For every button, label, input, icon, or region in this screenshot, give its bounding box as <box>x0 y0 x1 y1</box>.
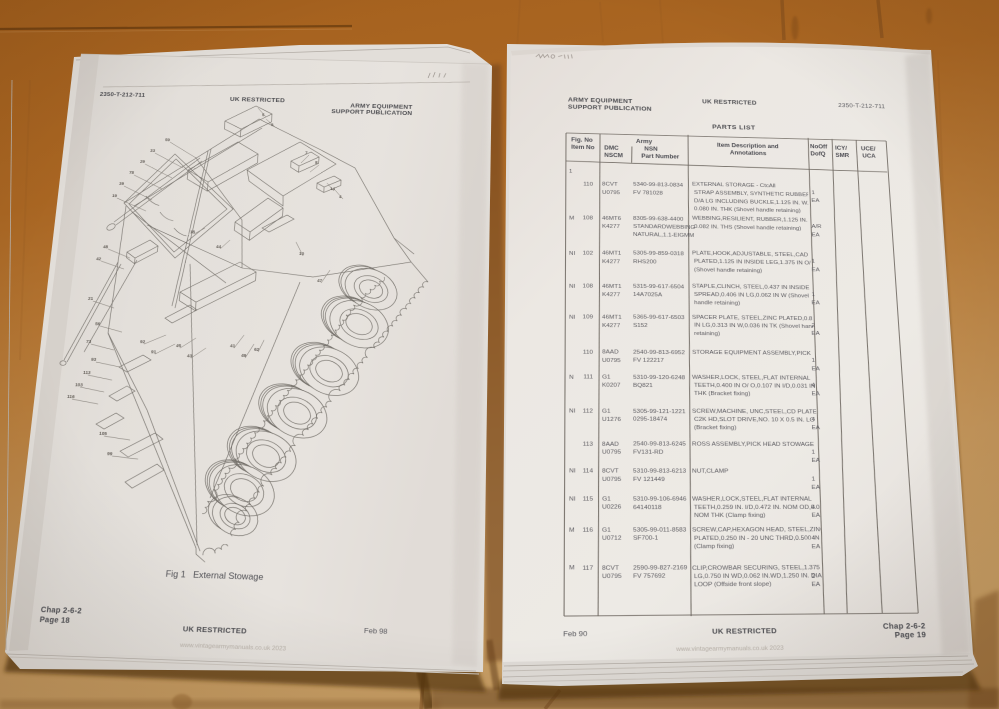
svg-text:NATURAL,1.1-EIGMM: NATURAL,1.1-EIGMM <box>633 232 695 239</box>
svg-text:108: 108 <box>583 283 593 289</box>
svg-text:Part Number: Part Number <box>641 154 680 161</box>
svg-text:47: 47 <box>317 278 323 283</box>
svg-text:2590-99-827-2169: 2590-99-827-2169 <box>633 565 687 572</box>
svg-text:8305-99-638-4400: 8305-99-638-4400 <box>633 216 683 223</box>
svg-text:103: 103 <box>75 382 84 388</box>
svg-text:1: 1 <box>811 358 815 364</box>
svg-text:5305-99-859-0318: 5305-99-859-0318 <box>633 251 684 258</box>
svg-text:handle retaining): handle retaining) <box>694 300 740 307</box>
svg-text:1: 1 <box>569 169 572 175</box>
svg-text:DMC: DMC <box>604 146 619 152</box>
svg-text:D/A LG INCLUDING BUCKLE,1.125: D/A LG INCLUDING BUCKLE,1.125 IN. W. <box>694 198 809 206</box>
svg-text:44: 44 <box>216 244 222 249</box>
svg-text:M: M <box>569 565 575 572</box>
svg-text:5310-99-813-6213: 5310-99-813-6213 <box>633 468 686 475</box>
svg-text:(Shovel handle retaining): (Shovel handle retaining) <box>694 267 762 274</box>
svg-text:2: 2 <box>811 573 815 580</box>
svg-text:M: M <box>569 527 575 534</box>
svg-text:TEETH,0.400 IN O/ O,0.107 IN I: TEETH,0.400 IN O/ O,0.107 IN I/D,0.031 I… <box>694 383 816 390</box>
svg-text:CLIP,CROWBAR SECURING, STEEL,1: CLIP,CROWBAR SECURING, STEEL,1.375 IN. <box>692 565 831 572</box>
svg-text:73: 73 <box>86 339 93 345</box>
svg-text:G1: G1 <box>602 408 611 414</box>
svg-text:0.082 IN. THS (Shovel handle r: 0.082 IN. THS (Shovel handle retaining) <box>694 224 802 232</box>
svg-text:93: 93 <box>91 357 98 363</box>
svg-text:Fig. No: Fig. No <box>571 138 593 144</box>
svg-text:NSCM: NSCM <box>604 153 623 159</box>
svg-text:EA: EA <box>811 300 820 306</box>
svg-text:SCREW,MACHINE, UNC,STEEL,CD PL: SCREW,MACHINE, UNC,STEEL,CD PLATED, <box>692 408 824 415</box>
svg-text:46MT1: 46MT1 <box>602 315 622 321</box>
svg-text:8CVT: 8CVT <box>602 565 620 572</box>
svg-text:WASHER,LOCK, STEEL,FLAT INTERN: WASHER,LOCK, STEEL,FLAT INTERNAL <box>692 375 811 382</box>
svg-text:4: 4 <box>811 383 816 389</box>
svg-text:Item Description and: Item Description and <box>717 143 779 150</box>
svg-text:RHS200: RHS200 <box>633 259 656 265</box>
svg-text:105: 105 <box>99 431 108 437</box>
svg-text:U0226: U0226 <box>602 504 621 511</box>
svg-text:5305-99-121-1221: 5305-99-121-1221 <box>633 408 686 415</box>
svg-text:110: 110 <box>583 349 593 355</box>
svg-text:Army: Army <box>636 139 653 145</box>
svg-text:UCE/: UCE/ <box>861 147 876 153</box>
svg-text:Annotations: Annotations <box>730 151 767 157</box>
svg-text:10: 10 <box>299 251 305 256</box>
svg-text:8: 8 <box>315 160 319 165</box>
svg-text:LG,0.750 IN WD,0.062 IN.WD,1.2: LG,0.750 IN WD,0.062 IN.WD,1.250 IN. DIA <box>694 573 822 580</box>
svg-text:19: 19 <box>112 193 118 198</box>
svg-text:U1276: U1276 <box>602 417 621 423</box>
svg-text:STANDARDWEBBING: STANDARDWEBBING <box>633 224 696 231</box>
svg-text:2540-99-813-6952: 2540-99-813-6952 <box>633 349 685 356</box>
svg-text:PLATED,1.125 IN INSIDE LEG,1.3: PLATED,1.125 IN INSIDE LEG,1.375 IN O/A … <box>694 259 823 267</box>
svg-text:5310-99-120-6248: 5310-99-120-6248 <box>633 374 685 381</box>
svg-text:14A7025A: 14A7025A <box>633 292 662 298</box>
svg-text:1: 1 <box>811 450 815 456</box>
svg-text:102: 102 <box>583 250 593 256</box>
svg-text:EA: EA <box>811 485 820 491</box>
svg-text:59: 59 <box>165 137 171 142</box>
svg-text:K4277: K4277 <box>602 224 620 230</box>
svg-text:NI: NI <box>569 284 576 290</box>
svg-text:EA: EA <box>811 425 820 431</box>
svg-text:1: 1 <box>811 477 815 483</box>
svg-text:STRAP ASSEMBLY, SYNTHETIC RUBB: STRAP ASSEMBLY, SYNTHETIC RUBBER,8 IN <box>694 190 823 198</box>
svg-text:33: 33 <box>150 148 156 153</box>
svg-text:8AAD: 8AAD <box>602 441 619 447</box>
svg-text:41: 41 <box>230 343 236 349</box>
svg-text:8CVT: 8CVT <box>602 468 619 475</box>
svg-text:5310-99-106-6946: 5310-99-106-6946 <box>633 496 687 503</box>
svg-text:EA: EA <box>811 513 820 520</box>
svg-text:46MT1: 46MT1 <box>602 251 621 257</box>
svg-text:K4277: K4277 <box>602 259 620 265</box>
svg-text:FV131-RD: FV131-RD <box>633 450 664 457</box>
svg-text:U0795: U0795 <box>602 477 621 484</box>
svg-text:46MT1: 46MT1 <box>602 284 622 290</box>
svg-text:29: 29 <box>140 159 146 164</box>
svg-text:8CVT: 8CVT <box>602 182 618 188</box>
svg-text:FV 781028: FV 781028 <box>633 190 663 196</box>
svg-text:0295-18474: 0295-18474 <box>633 417 668 424</box>
svg-text:U0795: U0795 <box>602 573 622 580</box>
svg-text:4: 4 <box>811 417 816 423</box>
svg-text:NSN: NSN <box>644 147 657 153</box>
svg-text:K0207: K0207 <box>602 383 621 389</box>
svg-text:FV 121449: FV 121449 <box>633 477 665 484</box>
svg-text:C2K HD,SLOT DRIVE,NO. 10 X 0.5: C2K HD,SLOT DRIVE,NO. 10 X 0.5 IN. LG <box>694 417 815 424</box>
svg-text:5365-99-617-6503: 5365-99-617-6503 <box>633 315 685 322</box>
svg-text:FV 122217: FV 122217 <box>633 358 664 364</box>
svg-text:DofQ: DofQ <box>810 152 826 158</box>
svg-text:G1: G1 <box>602 527 611 534</box>
svg-text:NI: NI <box>569 496 576 503</box>
svg-text:NOM THK (Clamp fixing): NOM THK (Clamp fixing) <box>694 513 766 520</box>
svg-text:TEETH,0.259 IN. I/D,0.472 IN.: TEETH,0.259 IN. I/D,0.472 IN. NOM OD,0.0… <box>694 504 837 511</box>
svg-text:NI: NI <box>569 408 576 414</box>
svg-text:EXTERNAL STORAGE - CtcAll: EXTERNAL STORAGE - CtcAll <box>692 182 776 190</box>
svg-text:115: 115 <box>583 496 593 503</box>
svg-text:SMR: SMR <box>835 153 850 159</box>
svg-text:SPACER PLATE, STEEL,ZINC PLATE: SPACER PLATE, STEEL,ZINC PLATED,0.813 <box>692 315 819 323</box>
svg-text:1: 1 <box>811 292 815 298</box>
svg-text:EA: EA <box>811 198 819 204</box>
svg-text:SF700-1: SF700-1 <box>633 535 658 542</box>
svg-text:G1: G1 <box>602 496 611 503</box>
svg-text:108: 108 <box>583 216 593 222</box>
svg-text:IN LG,0.313 IN W,0.036 IN TK (: IN LG,0.313 IN W,0.036 IN TK (Shovel han… <box>694 323 820 331</box>
svg-text:LOOP (Offside front slope): LOOP (Offside front slope) <box>694 581 772 588</box>
svg-text:A/R: A/R <box>811 224 821 230</box>
svg-text:2540-99-813-6245: 2540-99-813-6245 <box>633 441 686 448</box>
svg-text:NoOff: NoOff <box>810 144 828 150</box>
svg-text:EA: EA <box>811 582 820 589</box>
svg-text:116: 116 <box>67 394 76 400</box>
svg-text:21: 21 <box>88 296 94 301</box>
svg-text:WASHER,LOCK,STEEL,FLAT INTERNA: WASHER,LOCK,STEEL,FLAT INTERNAL <box>692 496 812 503</box>
svg-text:111: 111 <box>583 374 593 380</box>
svg-text:1: 1 <box>811 190 815 196</box>
svg-text:ICY/: ICY/ <box>835 146 848 152</box>
svg-text:42: 42 <box>96 256 102 261</box>
svg-text:48: 48 <box>103 244 109 249</box>
svg-text:78: 78 <box>129 170 135 175</box>
svg-text:K4277: K4277 <box>602 292 620 298</box>
svg-text:Item No: Item No <box>571 145 595 151</box>
svg-text:G1: G1 <box>602 374 611 380</box>
svg-text:5315-99-617-6504: 5315-99-617-6504 <box>633 284 685 291</box>
svg-text:46MT6: 46MT6 <box>602 216 621 222</box>
svg-text:NI: NI <box>569 251 576 257</box>
svg-text:K4277: K4277 <box>602 323 620 329</box>
svg-text:U0795: U0795 <box>602 190 620 196</box>
svg-text:0.080 IN. THK (Shovel handle r: 0.080 IN. THK (Shovel handle retaining) <box>694 206 801 214</box>
svg-text:U0712: U0712 <box>602 535 621 542</box>
svg-text:EA: EA <box>811 232 819 238</box>
svg-text:110: 110 <box>583 182 593 188</box>
svg-text:8AAD: 8AAD <box>602 349 619 355</box>
svg-text:retaining): retaining) <box>694 331 720 337</box>
svg-text:N: N <box>569 374 574 380</box>
svg-text:(Clamp fixing): (Clamp fixing) <box>694 543 734 550</box>
svg-text:FV 757692: FV 757692 <box>633 573 665 580</box>
svg-text:M: M <box>569 216 574 222</box>
svg-text:5305-99-011-8583: 5305-99-011-8583 <box>633 527 686 534</box>
svg-text:BQ821: BQ821 <box>633 383 653 389</box>
svg-text:EA: EA <box>811 458 820 464</box>
svg-text:UCA: UCA <box>862 154 876 160</box>
svg-text:5: 5 <box>262 112 266 117</box>
svg-text:THK (Bracket fixing): THK (Bracket fixing) <box>694 391 751 398</box>
svg-text:NI: NI <box>569 468 576 475</box>
svg-text:STORAGE EQUIPMENT ASSEMBLY,PIC: STORAGE EQUIPMENT ASSEMBLY,PICK <box>692 350 811 357</box>
svg-text:EA: EA <box>811 331 820 337</box>
svg-text:EA: EA <box>811 267 820 273</box>
svg-text:PLATE,HOOK,ADJUSTABLE, STEEL,C: PLATE,HOOK,ADJUSTABLE, STEEL,CAD <box>692 251 808 259</box>
svg-text:5340-99-813-0834: 5340-99-813-0834 <box>633 182 684 189</box>
svg-text:U0795: U0795 <box>602 358 621 364</box>
svg-text:EA: EA <box>811 544 820 551</box>
svg-text:EA: EA <box>811 391 820 397</box>
svg-text:1: 1 <box>811 259 815 265</box>
svg-text:114: 114 <box>583 468 594 475</box>
svg-text:U0795: U0795 <box>602 450 621 457</box>
svg-text:PLATED,0.250 IN - 20 UNC THRD,: PLATED,0.250 IN - 20 UNC THRD,0.500 IN L… <box>694 535 831 542</box>
svg-text:64140118: 64140118 <box>633 504 662 511</box>
svg-text:WEBBING,RESILIENT, RUBBER,1.12: WEBBING,RESILIENT, RUBBER,1.125 IN. W. <box>692 216 817 224</box>
svg-text:109: 109 <box>583 314 594 320</box>
svg-text:NI: NI <box>569 315 576 321</box>
svg-text:116: 116 <box>582 527 593 534</box>
svg-text:SCREW,CAP,HEXAGON HEAD, STEEL,: SCREW,CAP,HEXAGON HEAD, STEEL,ZINC <box>692 527 825 534</box>
svg-text:EA: EA <box>811 366 820 372</box>
svg-text:NUT,CLAMP: NUT,CLAMP <box>692 468 729 475</box>
svg-text:S152: S152 <box>633 323 648 329</box>
svg-text:113: 113 <box>583 441 593 447</box>
svg-text:ROSS ASSEMBLY,PICK HEAD STOWAG: ROSS ASSEMBLY,PICK HEAD STOWAGE <box>692 441 814 448</box>
svg-text:113: 113 <box>83 370 92 376</box>
svg-text:2: 2 <box>811 323 815 329</box>
svg-text:39: 39 <box>119 181 125 186</box>
svg-text:SPREAD,0.406 IN LG,0.062 IN W: SPREAD,0.406 IN LG,0.062 IN W (Shovel <box>694 292 809 300</box>
svg-text:STAPLE,CLINCH, STEEL,0.437 IN: STAPLE,CLINCH, STEEL,0.437 IN INSIDE <box>692 284 810 292</box>
svg-text:117: 117 <box>582 565 593 572</box>
svg-text:7: 7 <box>305 150 309 155</box>
svg-text:99: 99 <box>107 451 114 457</box>
svg-text:112: 112 <box>583 408 593 414</box>
svg-text:4: 4 <box>339 194 343 199</box>
svg-text:(Bracket fixing): (Bracket fixing) <box>694 425 737 432</box>
